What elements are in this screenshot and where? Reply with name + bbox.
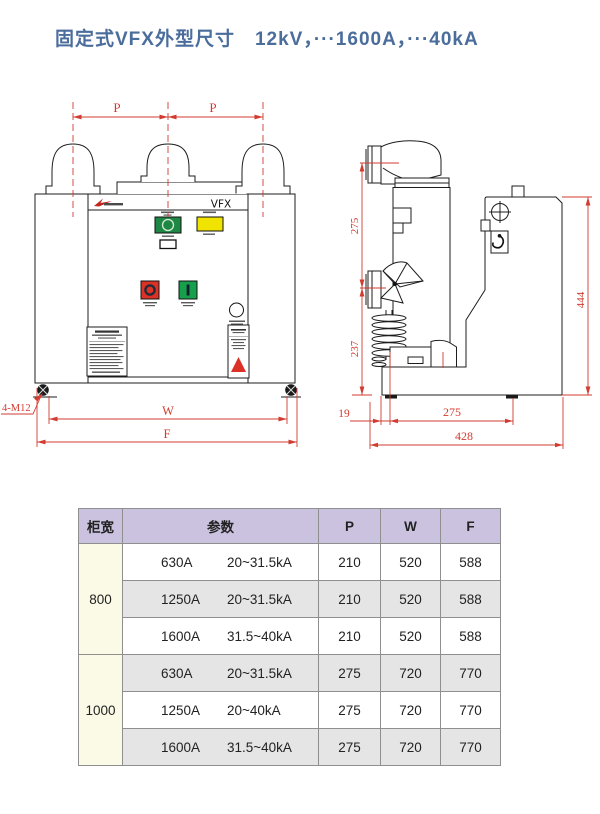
current-rating: 1250A [161, 703, 215, 718]
table-row: 1600A31.5~40kA 210 520 588 [79, 618, 501, 655]
warning-label [228, 325, 249, 378]
micro-text [203, 212, 216, 214]
dim-total-depth: 428 [455, 429, 473, 443]
current-rating: 1250A [161, 592, 215, 607]
micro-text [162, 236, 174, 237]
param-cell: 1250A20~40kA [123, 692, 319, 729]
value-w: 720 [381, 729, 441, 766]
value-f: 588 [441, 544, 501, 581]
open-button [141, 281, 159, 299]
operation-counter [160, 240, 176, 249]
dim-pitch-left: P [113, 100, 120, 115]
base-foot-rear [506, 395, 518, 399]
micro-text [203, 234, 215, 235]
dim-frame-f: F [164, 427, 171, 441]
current-rating: 1600A [161, 629, 215, 644]
position-indicator-yellow [197, 217, 223, 231]
dim-front-offset: 19 [338, 408, 350, 420]
dim-pitch-right: P [209, 100, 216, 115]
value-p: 275 [319, 655, 381, 692]
pole-tab-lower [393, 223, 403, 233]
value-w: 520 [381, 544, 441, 581]
value-p: 210 [319, 544, 381, 581]
rating-nameplate [87, 327, 127, 376]
cabinet-width-1000: 1000 [79, 655, 123, 766]
dim-width-w: W [162, 404, 174, 418]
param-cell: 1250A20~31.5kA [123, 581, 319, 618]
value-f: 770 [441, 729, 501, 766]
table-row: 1250A20~40kA 275 720 770 [79, 692, 501, 729]
value-f: 588 [441, 618, 501, 655]
breaking-rating: 20~31.5kA [227, 592, 292, 607]
brand-logo-text-bar [104, 203, 123, 205]
breaking-rating: 31.5~40kA [227, 740, 292, 755]
value-f: 588 [441, 581, 501, 618]
current-rating: 1600A [161, 740, 215, 755]
breaking-rating: 31.5~40kA [227, 629, 292, 644]
breaking-rating: 20~40kA [227, 703, 281, 718]
value-p: 210 [319, 581, 381, 618]
micro-text [183, 305, 193, 306]
micro-text [161, 212, 174, 214]
header-w: W [381, 509, 441, 544]
value-w: 520 [381, 581, 441, 618]
value-p: 210 [319, 618, 381, 655]
dim-depth-pitch: 275 [443, 405, 461, 419]
value-f: 770 [441, 692, 501, 729]
value-w: 720 [381, 692, 441, 729]
frame-side-tab [481, 220, 490, 231]
table-header-row: 柜宽 参数 P W F [79, 509, 501, 544]
value-p: 275 [319, 729, 381, 766]
bushing-platform [117, 182, 247, 194]
model-label: VFX [211, 199, 231, 211]
current-rating: 630A [161, 666, 215, 681]
value-w: 720 [381, 655, 441, 692]
param-cell: 1600A31.5~40kA [123, 618, 319, 655]
frame-top-tab [512, 186, 524, 197]
catalog-page: 固定式VFX外型尺寸 12kV，···1600A，···40kA VFX [0, 0, 600, 814]
front-view-drawing: VFX [1, 100, 301, 447]
value-f: 770 [441, 655, 501, 692]
cabinet-width-800: 800 [79, 544, 123, 655]
lower-contact [368, 271, 381, 308]
header-f: F [441, 509, 501, 544]
dimension-table: 柜宽 参数 P W F 800 630A20~31.5kA 210 520 58… [78, 508, 501, 766]
param-cell: 1600A31.5~40kA [123, 729, 319, 766]
breaking-rating: 20~31.5kA [227, 666, 292, 681]
upper-contact [368, 146, 381, 183]
value-w: 520 [381, 618, 441, 655]
param-cell: 630A20~31.5kA [123, 655, 319, 692]
lifting-hook-icon [491, 231, 508, 253]
header-cabinet-width: 柜宽 [79, 509, 123, 544]
close-button-i-icon [187, 285, 190, 296]
dim-upper-pole-height: 275 [349, 217, 361, 234]
table-row: 1000 630A20~31.5kA 275 720 770 [79, 655, 501, 692]
pole-tab-upper [393, 208, 411, 223]
micro-text [229, 321, 245, 323]
param-cell: 630A20~31.5kA [123, 544, 319, 581]
table-row: 1600A31.5~40kA 275 720 770 [79, 729, 501, 766]
manual-operation-port [230, 303, 244, 317]
table-row: 800 630A20~31.5kA 210 520 588 [79, 544, 501, 581]
side-view-drawing: 275 237 444 19 275 428 [338, 141, 592, 449]
micro-text [181, 302, 195, 303]
value-p: 275 [319, 692, 381, 729]
dim-total-height: 444 [575, 291, 587, 308]
micro-text [143, 302, 157, 303]
current-rating: 630A [161, 555, 215, 570]
dim-lower-height: 237 [349, 340, 361, 357]
header-parameters: 参数 [123, 509, 319, 544]
table-row: 1250A20~31.5kA 210 520 588 [79, 581, 501, 618]
micro-text [164, 215, 172, 216]
micro-text [145, 305, 155, 306]
breaking-rating: 20~31.5kA [227, 555, 292, 570]
dim-mounting-holes: 4-M12 [2, 403, 31, 414]
header-p: P [319, 509, 381, 544]
mounting-foot-right [281, 384, 301, 397]
base-foot-front [385, 395, 397, 399]
